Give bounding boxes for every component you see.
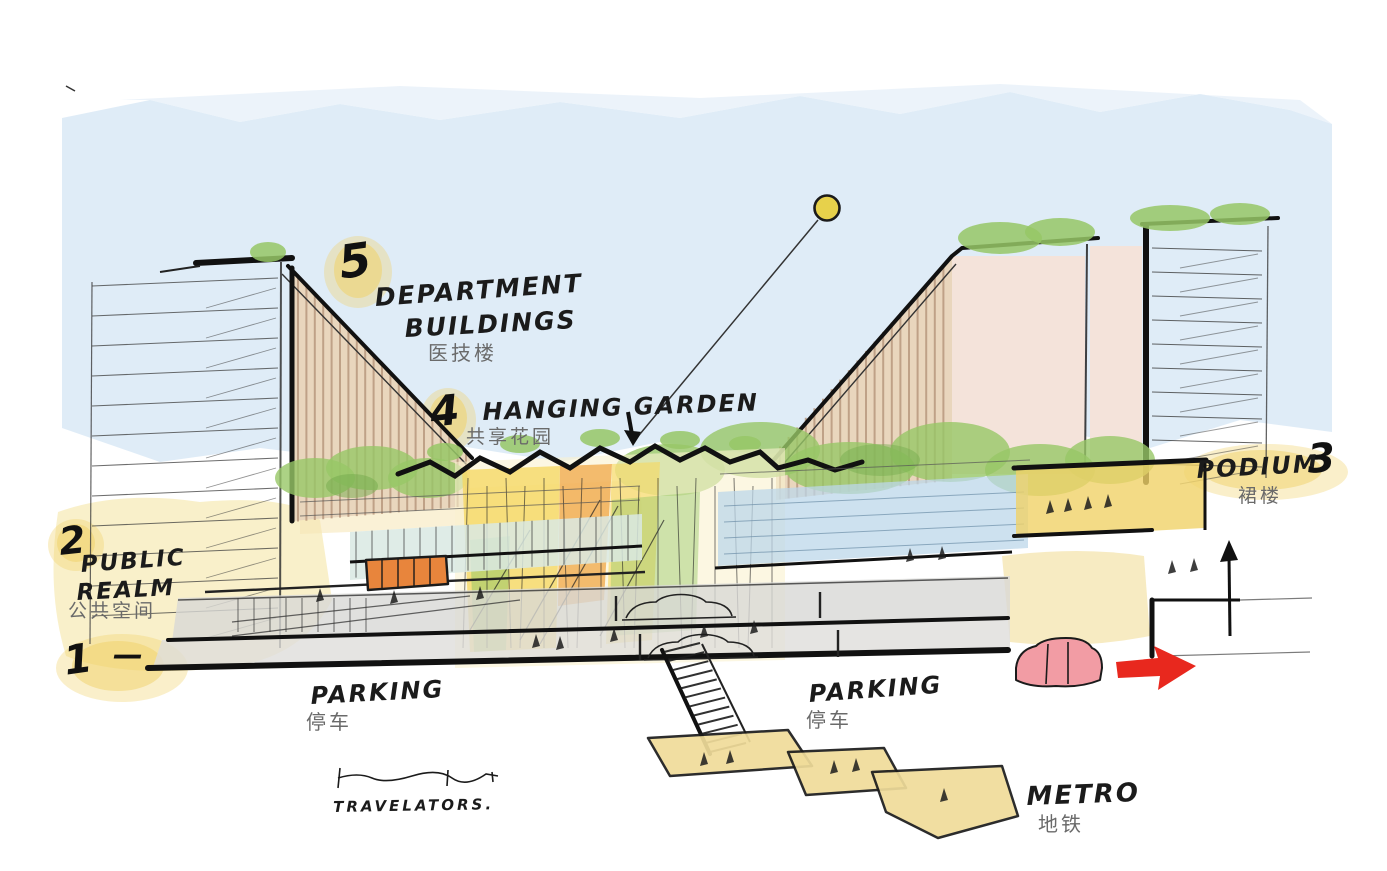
red-arrow-right-icon (1116, 646, 1196, 690)
label-podium-zh: 裙楼 (1238, 487, 1282, 506)
label-number-3: 3 (1306, 438, 1337, 480)
metro-platforms (648, 730, 1018, 838)
orange-shuttle (366, 556, 448, 590)
label-department-zh: 医技楼 (428, 343, 497, 363)
pink-car (1016, 638, 1102, 686)
label-number-1: 1 (61, 638, 94, 681)
label-parking-left-zh: 停车 (306, 712, 352, 732)
label-podium: PODIUM (1196, 452, 1319, 482)
label-level-one-dash: — (113, 638, 143, 673)
label-metro: METRO (1026, 780, 1140, 810)
label-number-5: 5 (336, 236, 374, 286)
sketch-canvas (0, 0, 1387, 871)
label-parking-left: PARKING (310, 677, 445, 708)
up-arrow-icon (1220, 540, 1238, 636)
label-parking-right-zh: 停车 (806, 710, 852, 730)
left-tower-right-edge (280, 262, 281, 648)
label-level-one: 1 — (64, 640, 143, 680)
label-number-4: 4 (428, 389, 461, 434)
label-hanging-garden-zh: 共享花园 (466, 428, 554, 447)
travelator-symbol (338, 768, 498, 788)
label-metro-zh: 地铁 (1038, 814, 1084, 834)
basement-thin-lines (1160, 598, 1312, 656)
label-travelators: TRAVELATORS. (333, 797, 494, 815)
pen-tick (66, 86, 75, 91)
label-public-realm-zh: 公共空间 (68, 602, 156, 621)
sketch-section-drawing: 5 DEPARTMENT BUILDINGS 医技楼 4 HANGING GAR… (0, 0, 1387, 871)
right-lower-yellow-wash (1002, 551, 1150, 645)
